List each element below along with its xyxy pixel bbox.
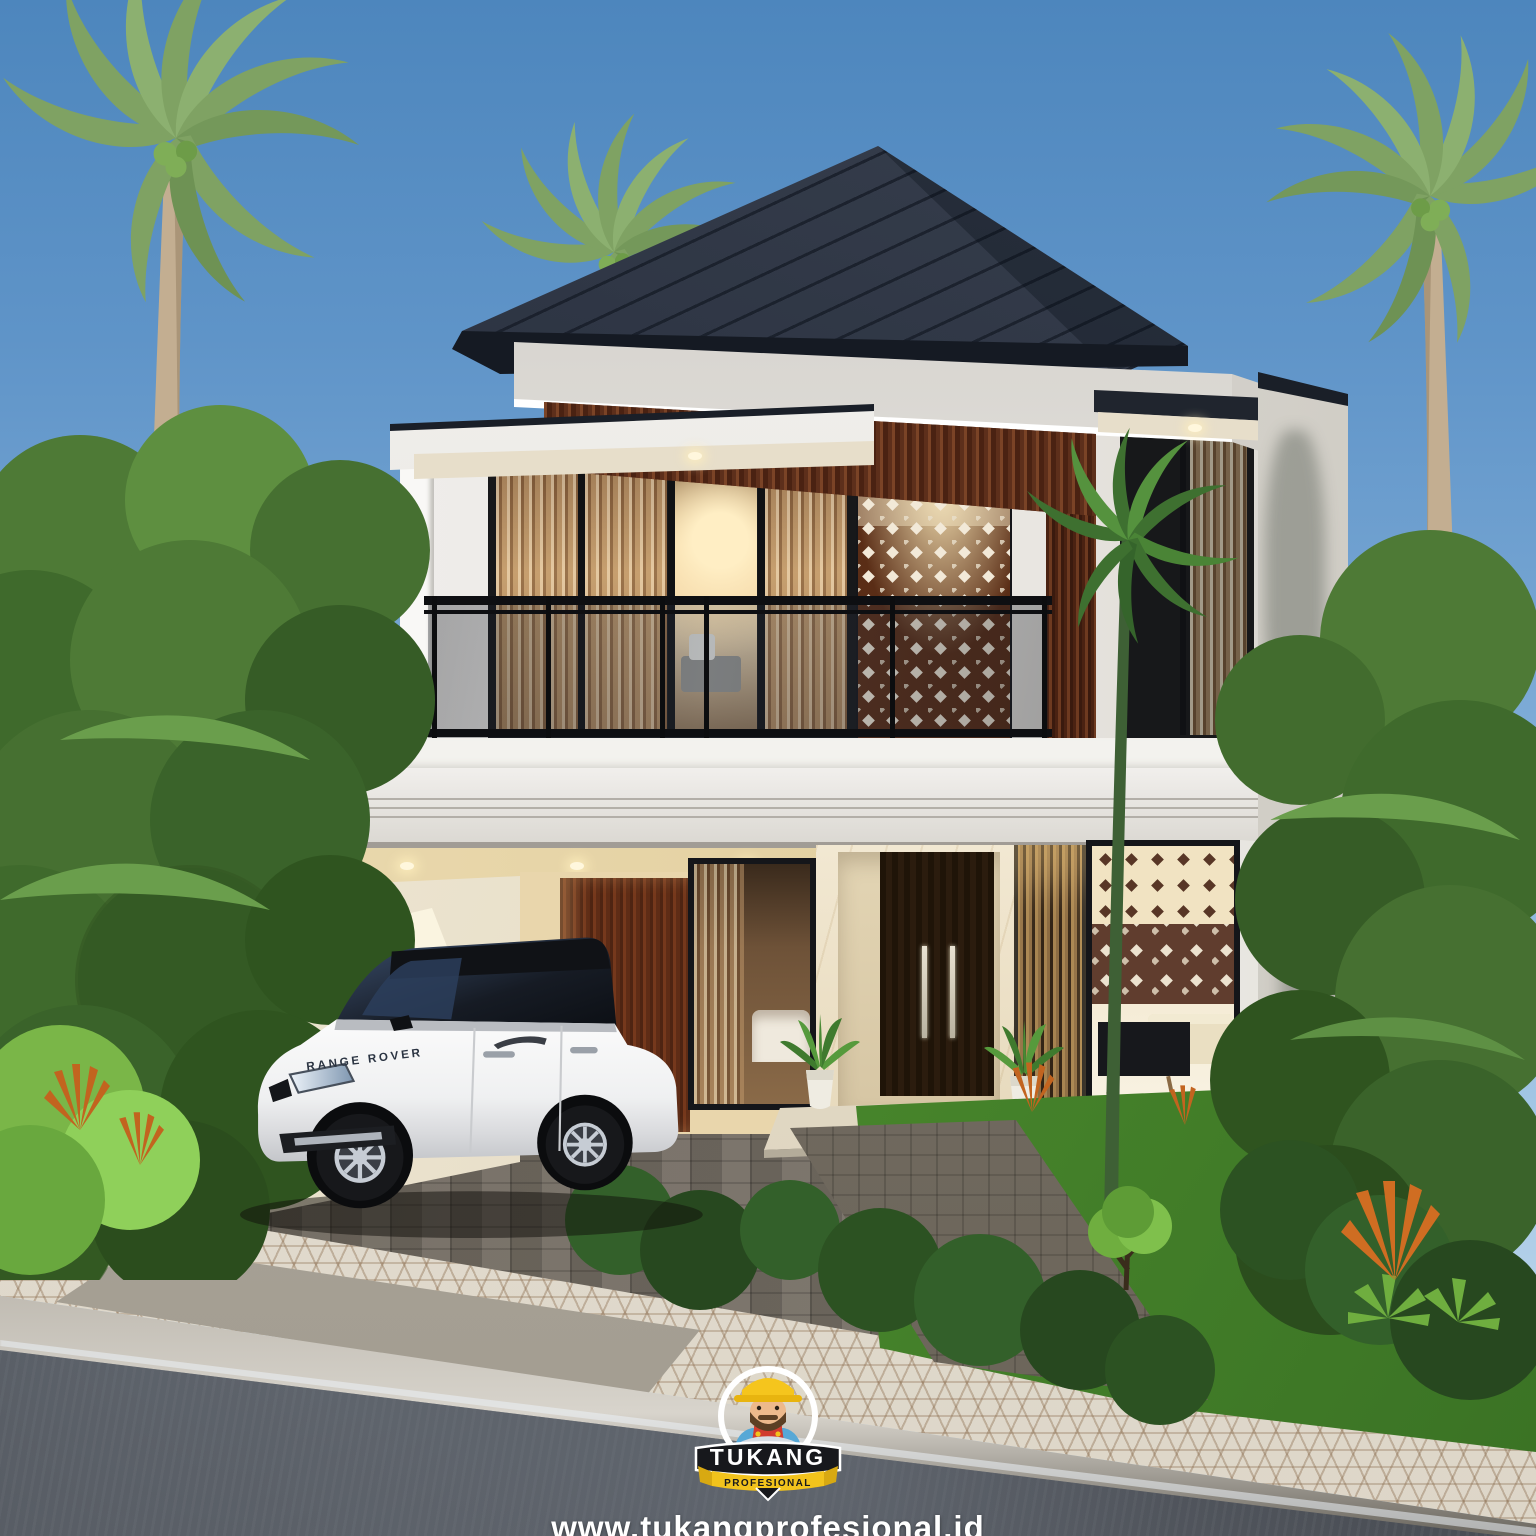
architectural-render: RANGE ROVER TUKANG	[0, 0, 1536, 1536]
tukang-profesional-logo: TUKANG PROFESIONAL	[668, 1360, 868, 1502]
logo-bottom-point	[756, 1488, 780, 1500]
car-shadow	[240, 1191, 703, 1238]
railing-post	[890, 596, 895, 742]
door-handle-rear	[570, 1047, 598, 1053]
railing-second-bar	[424, 610, 1052, 614]
rear-rim	[565, 1124, 605, 1164]
logo-subtitle: PROFESIONAL	[724, 1478, 812, 1489]
range-rover-car: RANGE ROVER	[232, 926, 732, 1238]
logo-title: TUKANG	[710, 1444, 826, 1470]
balcony-glass-panel	[428, 600, 1048, 738]
soffit-downlight	[688, 452, 702, 460]
watermark: TUKANG PROFESIONAL www.tukangprofesional…	[0, 1360, 1536, 1536]
railing-post	[546, 596, 551, 742]
railing-post	[704, 596, 709, 742]
carport-downlight	[570, 862, 584, 870]
website-url: www.tukangprofesional.id	[0, 1509, 1536, 1536]
railing-bottom-bar	[424, 729, 1052, 737]
railing-top-bar	[424, 596, 1052, 605]
door-handle-front	[483, 1051, 515, 1057]
railing-post	[660, 596, 665, 742]
